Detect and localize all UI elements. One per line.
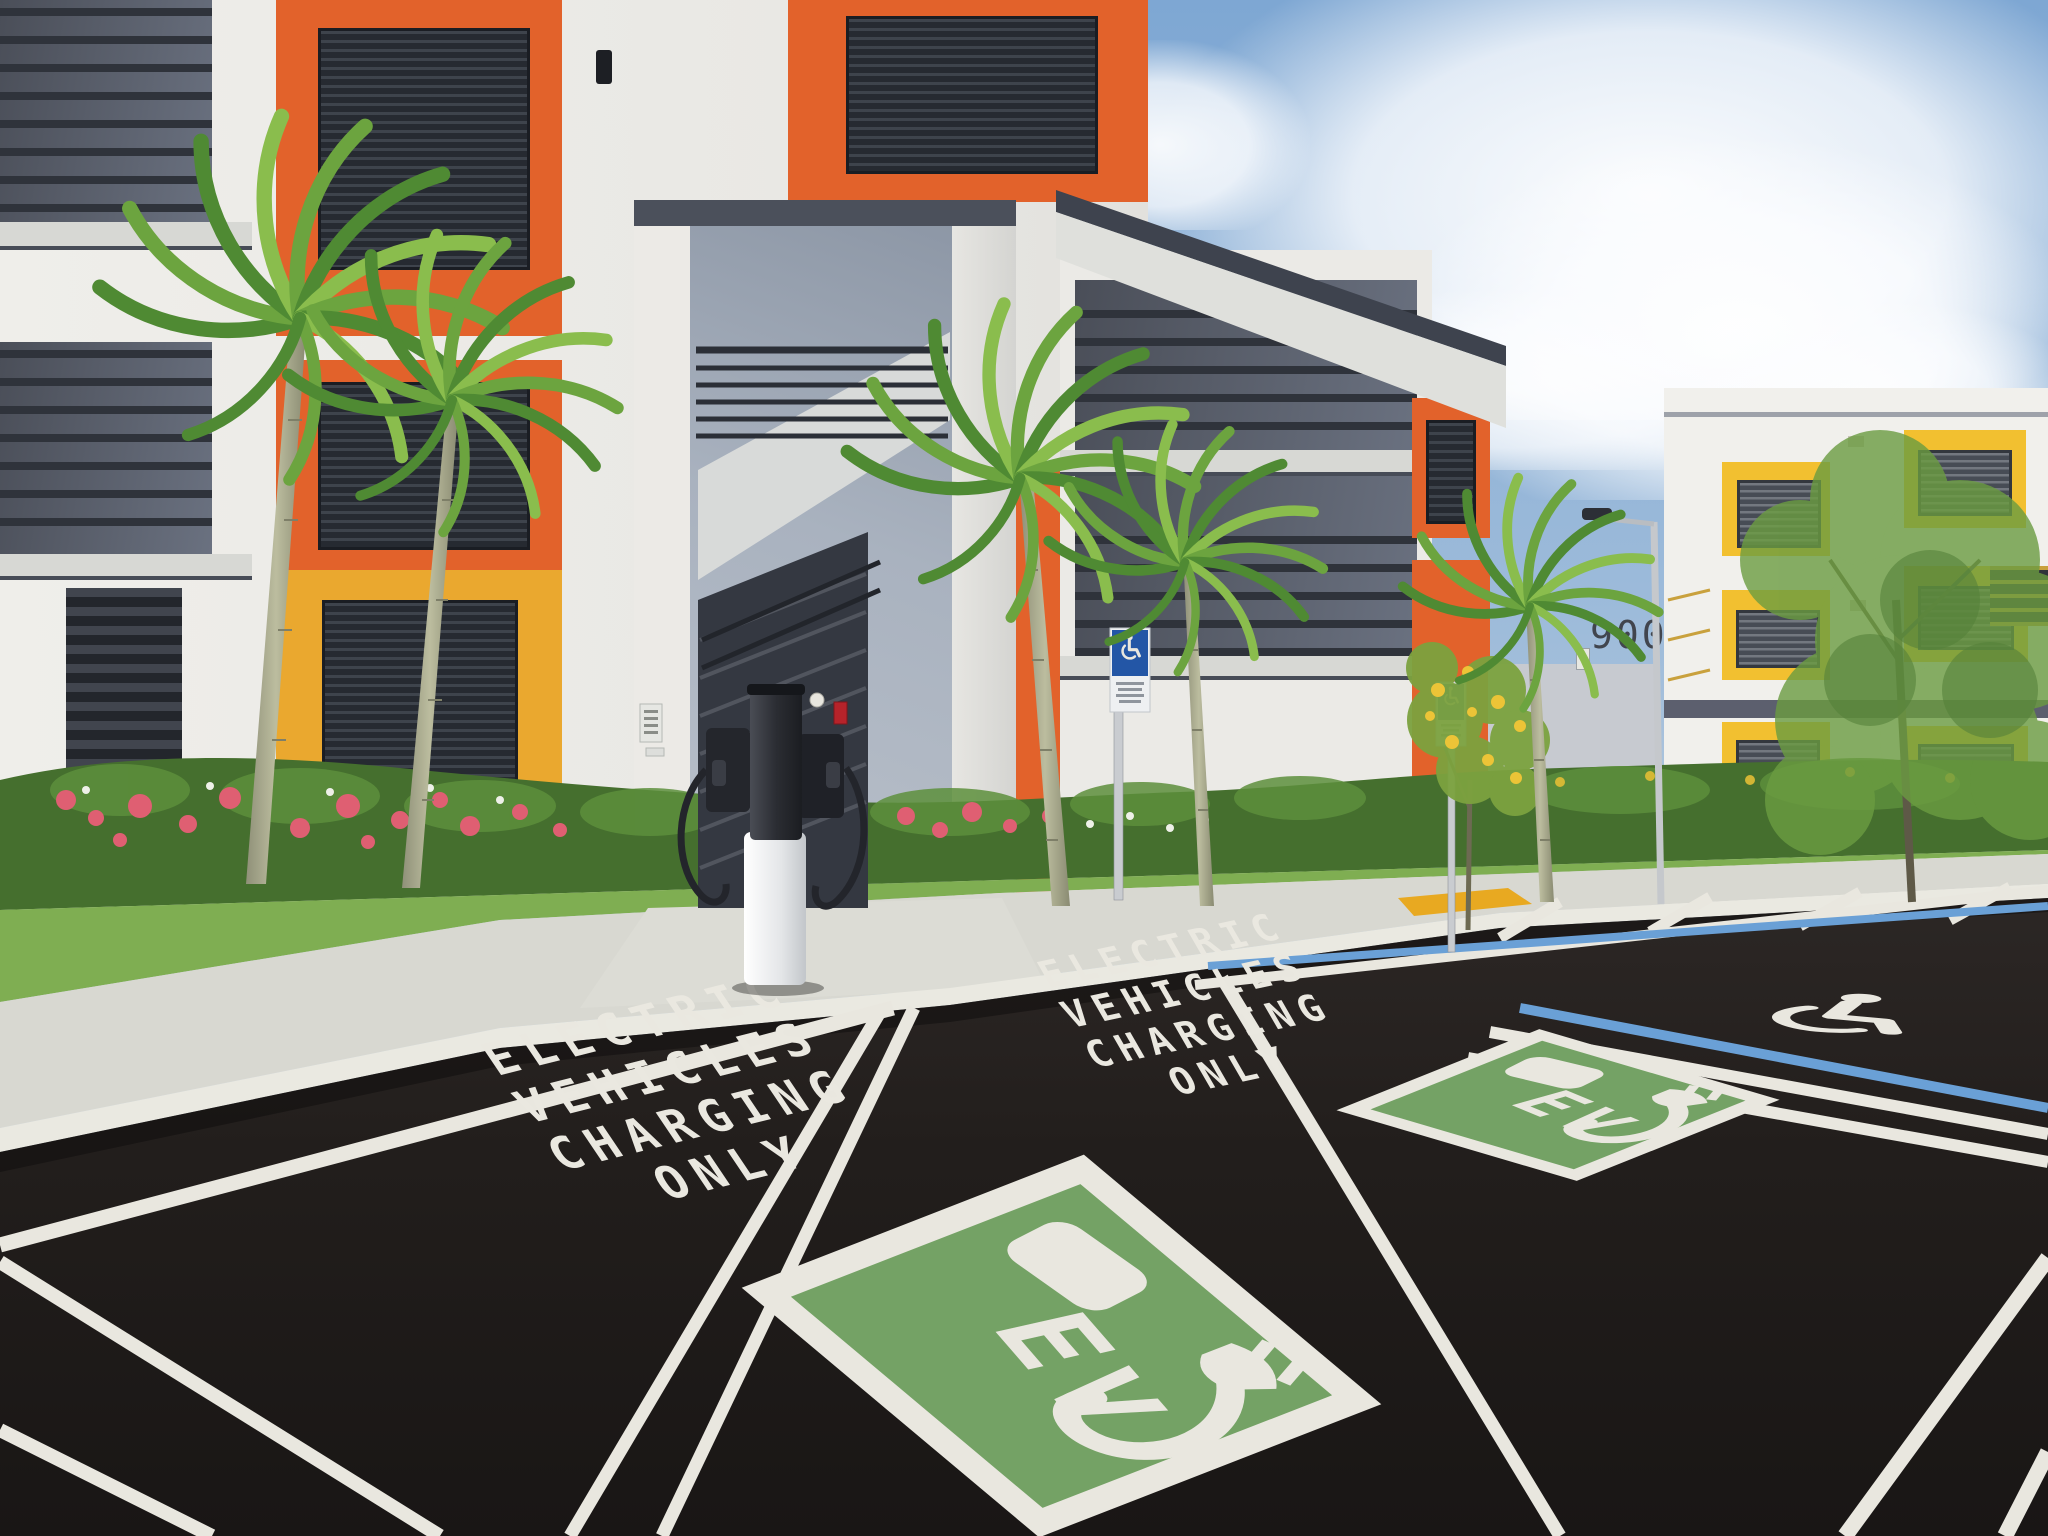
- apartment-complex-photo: ELECTRIC VEHICLES CHARGING ONLY ELECTRIC…: [0, 0, 2048, 1536]
- breezeway-yellow-rail: [1668, 590, 1710, 680]
- roof-soffit: [1056, 212, 1506, 428]
- charger-handle: [826, 762, 840, 788]
- ground-and-foreground: ELECTRIC VEHICLES CHARGING ONLY ELECTRIC…: [0, 0, 2048, 1536]
- directory-sign: [640, 704, 664, 756]
- alarm-bell: [810, 693, 824, 707]
- charger-pedestal: [744, 832, 806, 985]
- sign-pole: [1114, 700, 1123, 900]
- charger-handle: [712, 760, 726, 786]
- fire-alarm-pull-box: [834, 702, 847, 724]
- charger-cap: [747, 684, 805, 695]
- charger-head: [750, 690, 802, 840]
